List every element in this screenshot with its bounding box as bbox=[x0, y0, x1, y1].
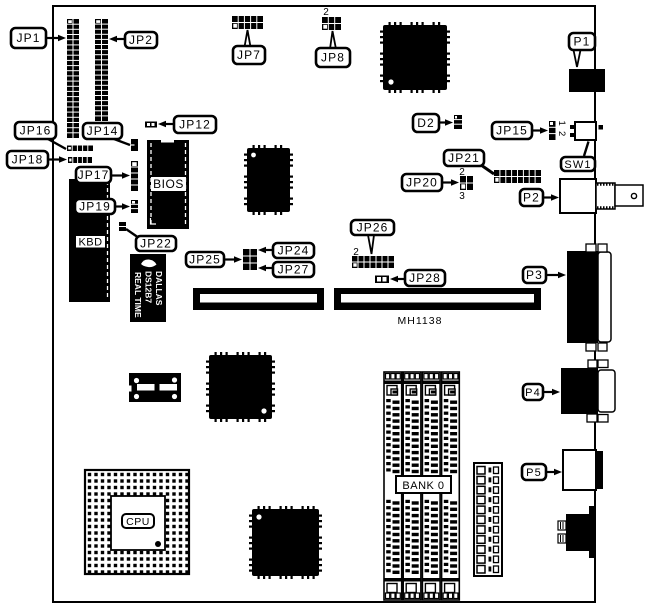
svg-text:KBD: KBD bbox=[78, 237, 102, 249]
svg-text:2: 2 bbox=[323, 7, 329, 18]
svg-text:JP27: JP27 bbox=[278, 263, 310, 277]
svg-text:JP18: JP18 bbox=[12, 153, 44, 167]
svg-text:JP8: JP8 bbox=[321, 51, 345, 65]
svg-text:BIOS: BIOS bbox=[153, 177, 184, 191]
svg-text:JP15: JP15 bbox=[496, 124, 528, 138]
svg-text:JP24: JP24 bbox=[278, 244, 310, 258]
svg-text:JP14: JP14 bbox=[87, 124, 119, 138]
svg-text:2: 2 bbox=[556, 131, 567, 136]
svg-text:JP2: JP2 bbox=[129, 33, 153, 47]
svg-text:JP16: JP16 bbox=[20, 124, 52, 138]
svg-text:BANK 0: BANK 0 bbox=[402, 480, 444, 492]
svg-text:1: 1 bbox=[556, 121, 567, 126]
svg-text:REAL TIME: REAL TIME bbox=[133, 272, 143, 318]
svg-text:P2: P2 bbox=[523, 191, 540, 205]
svg-text:JP22: JP22 bbox=[140, 237, 172, 251]
svg-text:DS12B7: DS12B7 bbox=[144, 271, 154, 303]
svg-text:P3: P3 bbox=[526, 268, 543, 282]
svg-text:MH1138: MH1138 bbox=[398, 315, 443, 327]
svg-text:P4: P4 bbox=[525, 387, 541, 399]
svg-text:JP20: JP20 bbox=[406, 176, 438, 190]
svg-text:JP19: JP19 bbox=[79, 200, 111, 214]
svg-text:JP7: JP7 bbox=[237, 48, 261, 62]
svg-text:2: 2 bbox=[459, 167, 465, 178]
svg-text:JP12: JP12 bbox=[179, 118, 211, 132]
svg-text:JP26: JP26 bbox=[357, 221, 389, 235]
svg-text:JP17: JP17 bbox=[78, 168, 110, 182]
svg-text:JP25: JP25 bbox=[189, 253, 221, 267]
svg-text:P1: P1 bbox=[574, 35, 591, 49]
svg-text:DALLAS: DALLAS bbox=[154, 271, 164, 306]
svg-text:JP1: JP1 bbox=[17, 31, 41, 45]
svg-text:CPU: CPU bbox=[126, 516, 150, 528]
svg-text:JP21: JP21 bbox=[448, 151, 480, 165]
svg-text:3: 3 bbox=[459, 191, 465, 202]
svg-text:D2: D2 bbox=[417, 116, 435, 130]
svg-text:JP28: JP28 bbox=[409, 271, 441, 285]
svg-text:SW1: SW1 bbox=[564, 159, 591, 171]
svg-text:P5: P5 bbox=[526, 467, 542, 479]
